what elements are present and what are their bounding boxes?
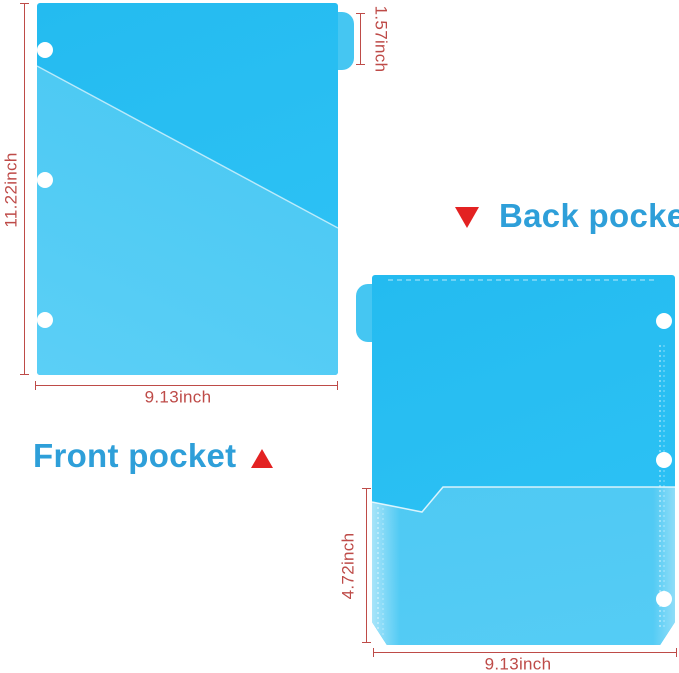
- tab-height-dimension-line: [356, 13, 365, 65]
- binder-hole: [656, 313, 672, 329]
- product-diagram: 11.22inch 9.13inch 1.57inch Front pocket…: [0, 0, 679, 673]
- back-folder: [372, 275, 675, 645]
- front-height-dimension-line: [20, 3, 29, 375]
- front-width-dimension-label: 9.13inch: [145, 389, 212, 406]
- back-pocket-height-dimension-line: [362, 488, 371, 643]
- back-width-dimension-label: 9.13inch: [485, 656, 552, 673]
- front-folder: [37, 3, 338, 375]
- binder-hole: [656, 452, 672, 468]
- tab-height-dimension-label: 1.57inch: [373, 6, 390, 73]
- binder-hole: [37, 312, 53, 328]
- back-pocket-label: Back pocket: [455, 197, 679, 235]
- front-pocket-arrow-up-icon: [251, 449, 273, 468]
- binder-hole: [37, 172, 53, 188]
- back-pocket-label-text: Back pocket: [499, 197, 679, 235]
- binder-hole: [656, 591, 672, 607]
- back-pocket-height-dimension-label: 4.72inch: [340, 533, 357, 600]
- back-pocket-arrow-down-icon: [455, 207, 479, 228]
- front-height-dimension-label: 11.22inch: [3, 152, 20, 227]
- front-pocket-label-text: Front pocket: [33, 437, 236, 475]
- front-pocket-label: Front pocket: [33, 437, 273, 475]
- binder-hole: [37, 42, 53, 58]
